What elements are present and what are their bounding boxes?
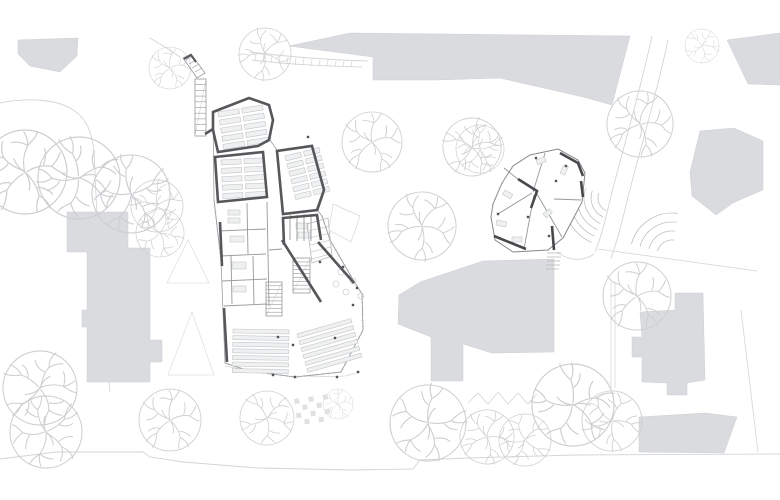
context-building-center-blob bbox=[398, 259, 554, 381]
landscape-stair-arcs-annex bbox=[591, 191, 603, 217]
site-path-annex-link bbox=[557, 252, 594, 259]
table bbox=[244, 158, 264, 164]
tree bbox=[228, 17, 301, 90]
tree bbox=[236, 387, 299, 450]
landscape-stair-arcs-annex bbox=[598, 193, 606, 211]
conifer-triangle bbox=[168, 312, 214, 375]
column-dot bbox=[548, 235, 550, 237]
furniture bbox=[228, 218, 240, 223]
column-dot bbox=[348, 276, 350, 278]
column-dot bbox=[352, 304, 354, 306]
column-dot bbox=[535, 157, 537, 159]
plaza-tile bbox=[296, 413, 302, 419]
table bbox=[245, 183, 265, 189]
stair bbox=[195, 79, 206, 136]
architectural-site-plan bbox=[0, 0, 780, 500]
table bbox=[244, 166, 264, 172]
column-dot bbox=[555, 180, 557, 182]
plaza-tile bbox=[308, 396, 314, 402]
tree bbox=[139, 389, 201, 451]
tree bbox=[515, 347, 631, 463]
site-line-southeast-property bbox=[741, 310, 758, 452]
plaza-tile bbox=[325, 409, 331, 415]
column-dot bbox=[292, 344, 294, 346]
furniture bbox=[296, 223, 308, 229]
column-dot bbox=[342, 266, 344, 268]
plaza-tile bbox=[294, 398, 300, 404]
tree bbox=[0, 130, 67, 214]
tree bbox=[495, 410, 555, 470]
column-dot bbox=[565, 165, 567, 167]
table bbox=[221, 167, 241, 173]
site-path-south-walk bbox=[0, 452, 780, 470]
context-building-west-tall bbox=[67, 212, 162, 382]
column-dot bbox=[272, 374, 274, 376]
column-dot bbox=[527, 216, 529, 218]
column-dot bbox=[334, 337, 336, 339]
tree bbox=[685, 29, 719, 63]
furniture bbox=[228, 210, 240, 215]
table bbox=[223, 193, 243, 199]
site-plan-svg bbox=[0, 0, 780, 500]
plaza-tile bbox=[316, 402, 322, 408]
tree bbox=[149, 47, 191, 89]
column-dot bbox=[336, 376, 338, 378]
layer-context-buildings bbox=[18, 33, 780, 453]
table bbox=[233, 342, 289, 347]
context-building-top-right-corner bbox=[727, 33, 780, 85]
table bbox=[232, 355, 288, 360]
column-dot bbox=[357, 371, 359, 373]
tree bbox=[374, 369, 481, 476]
site-hedge-zigzag bbox=[468, 392, 537, 404]
tree bbox=[435, 110, 509, 184]
plaza-tile bbox=[310, 411, 316, 417]
table bbox=[222, 176, 242, 182]
landscape-stair-arcs-east bbox=[658, 240, 675, 251]
table bbox=[232, 369, 288, 374]
table bbox=[221, 159, 241, 165]
context-building-east-house bbox=[690, 128, 763, 215]
furniture bbox=[512, 237, 522, 242]
context-building-north-mass bbox=[289, 33, 630, 105]
furniture bbox=[230, 236, 244, 242]
landscape-stair-arcs-east bbox=[640, 222, 677, 247]
context-building-southeast-b bbox=[639, 413, 737, 453]
table bbox=[245, 175, 265, 181]
plaza-tile bbox=[302, 404, 308, 410]
furniture bbox=[232, 262, 246, 269]
column-dot bbox=[497, 213, 499, 215]
tree bbox=[376, 180, 469, 273]
table bbox=[233, 349, 289, 354]
furniture bbox=[233, 286, 246, 292]
tree bbox=[603, 262, 671, 330]
plaza-tile bbox=[318, 417, 324, 423]
column-dot bbox=[319, 261, 321, 263]
table bbox=[232, 362, 288, 367]
context-building-top-left bbox=[18, 38, 78, 72]
conifer-triangle bbox=[167, 240, 209, 283]
landscape-stair-arcs-annex bbox=[584, 188, 600, 223]
landscape-stair-arcs-east bbox=[631, 213, 677, 244]
checker-plaza bbox=[294, 394, 331, 425]
table bbox=[222, 184, 242, 190]
tree bbox=[323, 389, 353, 419]
plaza-tile bbox=[304, 419, 310, 425]
column-dot bbox=[277, 336, 279, 338]
site-line-east-property bbox=[598, 249, 757, 271]
terrace-outline bbox=[329, 204, 360, 242]
table bbox=[233, 336, 289, 341]
column-dot bbox=[307, 136, 309, 138]
column-dot bbox=[356, 287, 358, 289]
tree bbox=[342, 112, 402, 172]
layer-main-building bbox=[183, 54, 364, 378]
plaza-tile bbox=[323, 394, 329, 400]
table bbox=[233, 329, 289, 334]
layer-annex-building bbox=[491, 149, 585, 269]
column-dot bbox=[294, 376, 296, 378]
site-hedge-north-2 bbox=[252, 60, 362, 67]
